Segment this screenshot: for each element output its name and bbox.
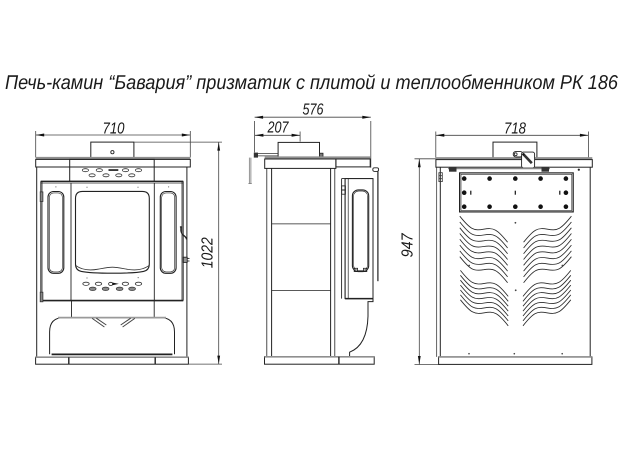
svg-text:947: 947 [399,232,416,257]
svg-text:Печь-камин “Бавария” призматик: Печь-камин “Бавария” призматик с плитой … [5,72,619,94]
svg-text:710: 710 [103,121,125,138]
svg-text:207: 207 [267,119,290,136]
svg-text:1022: 1022 [199,237,216,268]
svg-text:718: 718 [504,121,526,138]
svg-text:576: 576 [303,101,324,118]
